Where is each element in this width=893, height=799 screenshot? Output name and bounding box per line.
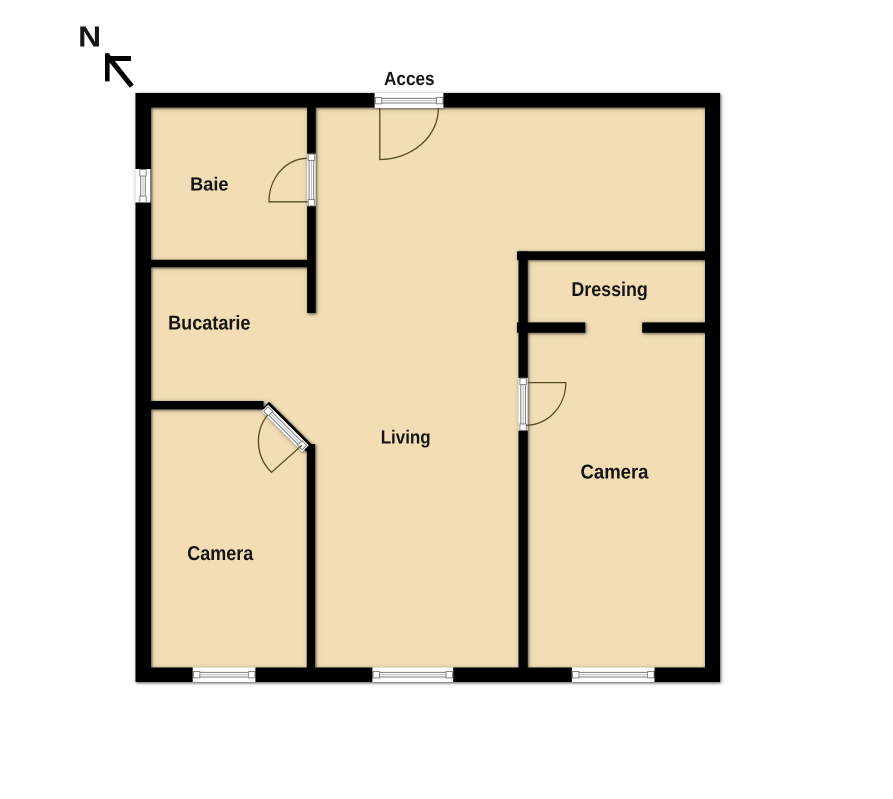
- svg-text:N: N: [78, 21, 101, 53]
- svg-text:Dressing: Dressing: [571, 279, 647, 301]
- svg-text:Camera: Camera: [187, 543, 254, 565]
- svg-text:Living: Living: [381, 428, 431, 449]
- svg-text:Acces: Acces: [384, 69, 435, 90]
- svg-text:Baie: Baie: [190, 175, 228, 196]
- svg-text:Bucatarie: Bucatarie: [168, 312, 250, 334]
- svg-text:Camera: Camera: [581, 462, 650, 484]
